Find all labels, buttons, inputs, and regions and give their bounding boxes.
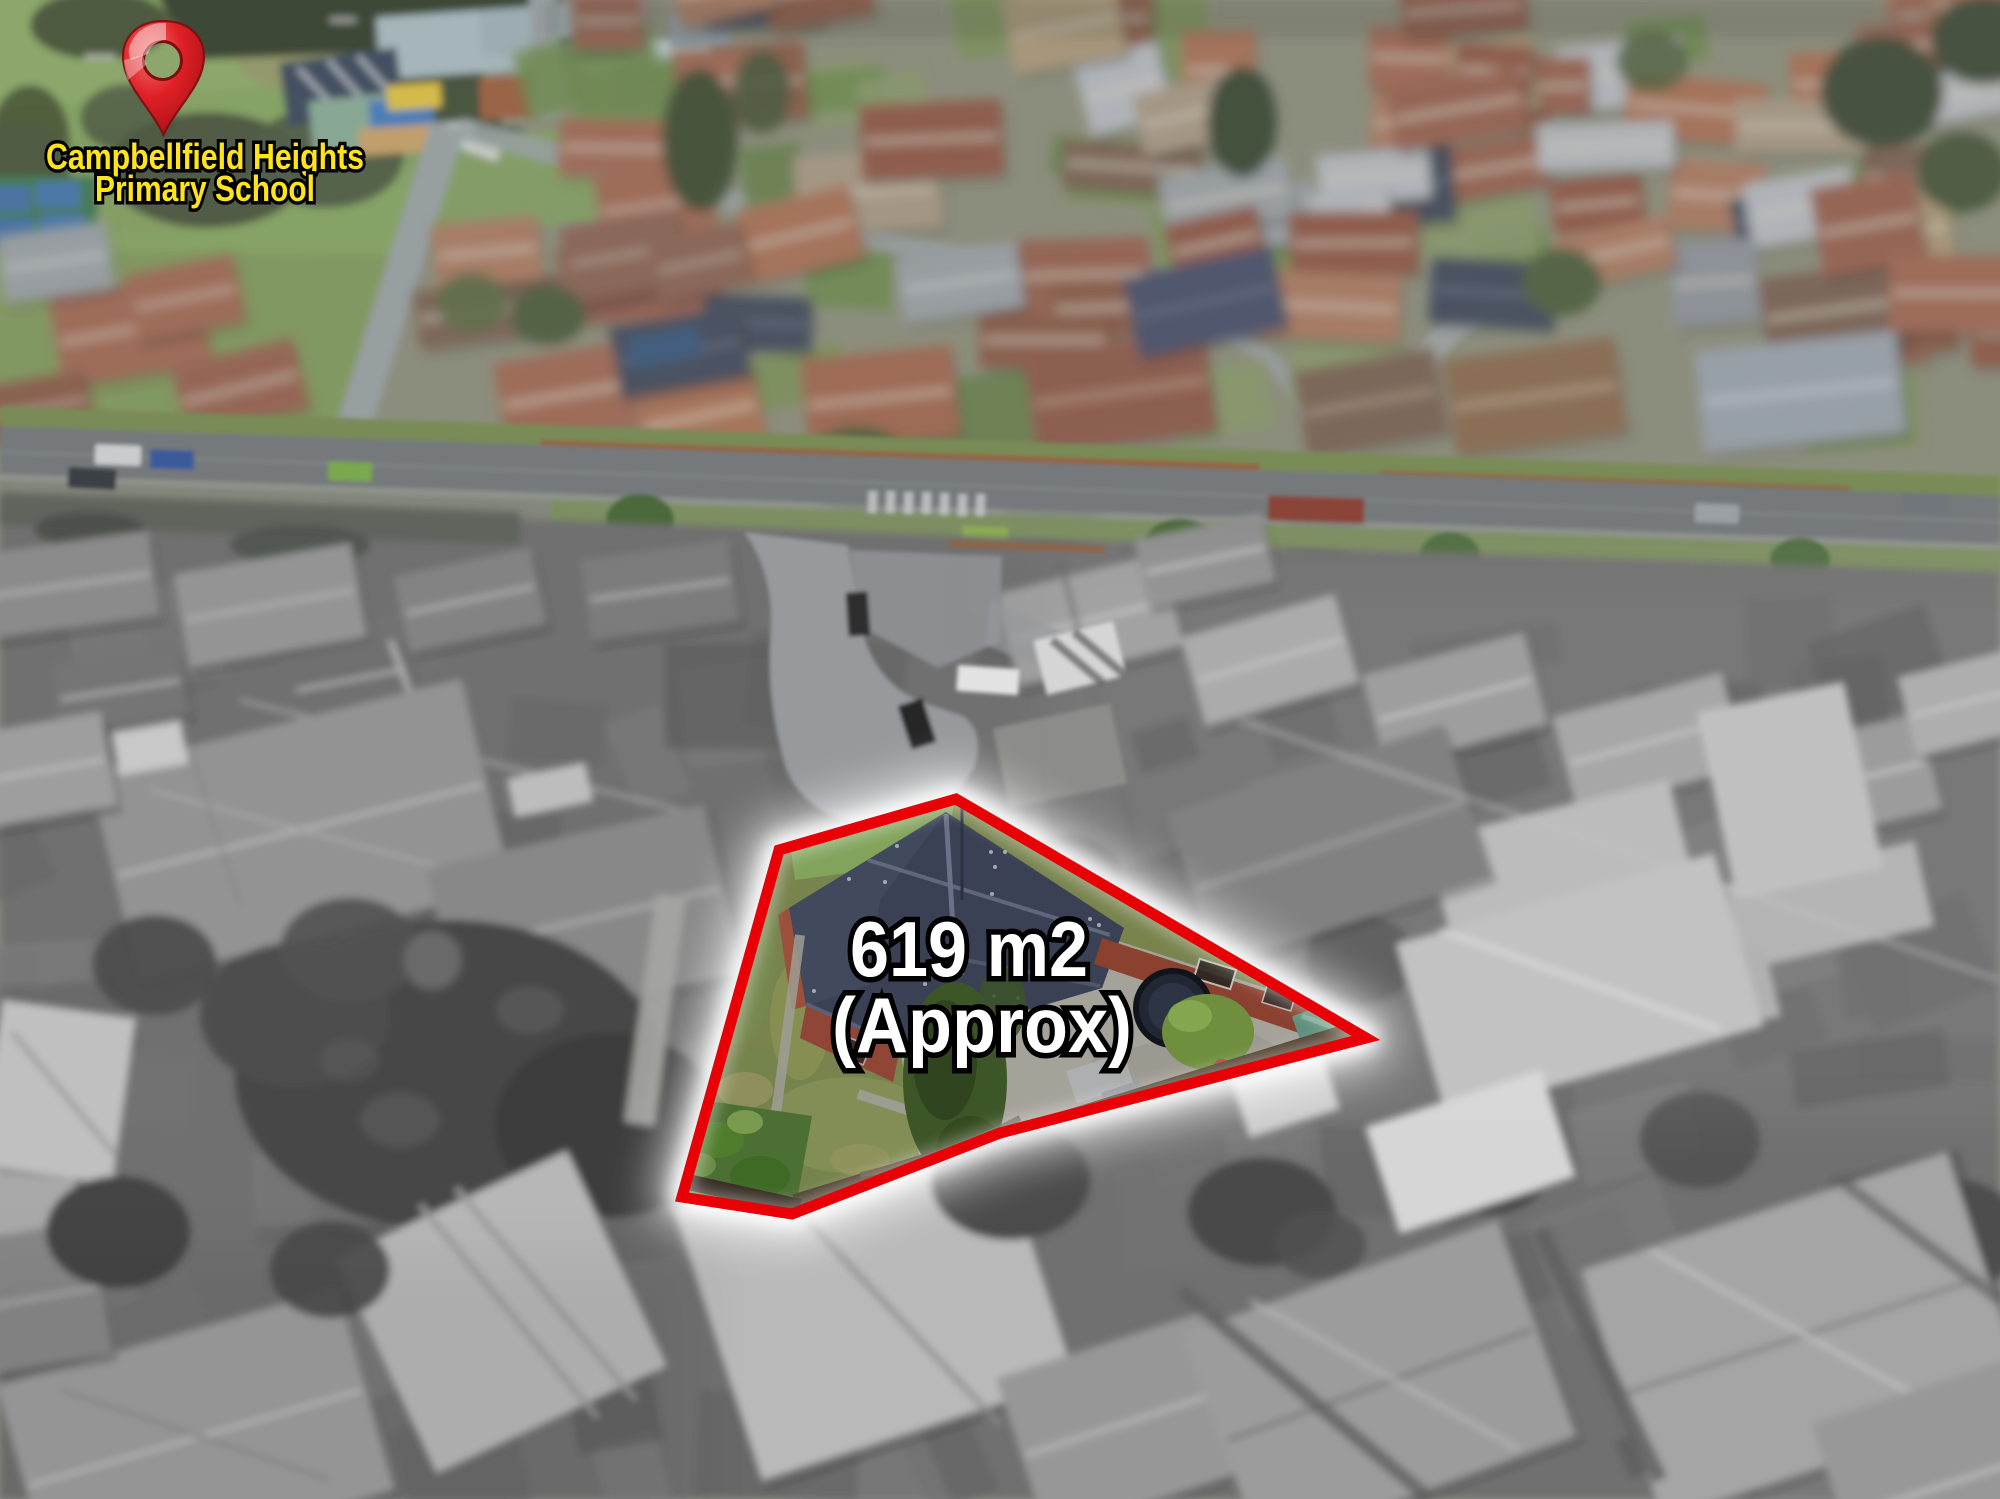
svg-text:Primary School: Primary School — [95, 168, 315, 209]
svg-text:619 m2: 619 m2 — [850, 905, 1088, 993]
svg-text:(Approx): (Approx) — [832, 981, 1132, 1069]
